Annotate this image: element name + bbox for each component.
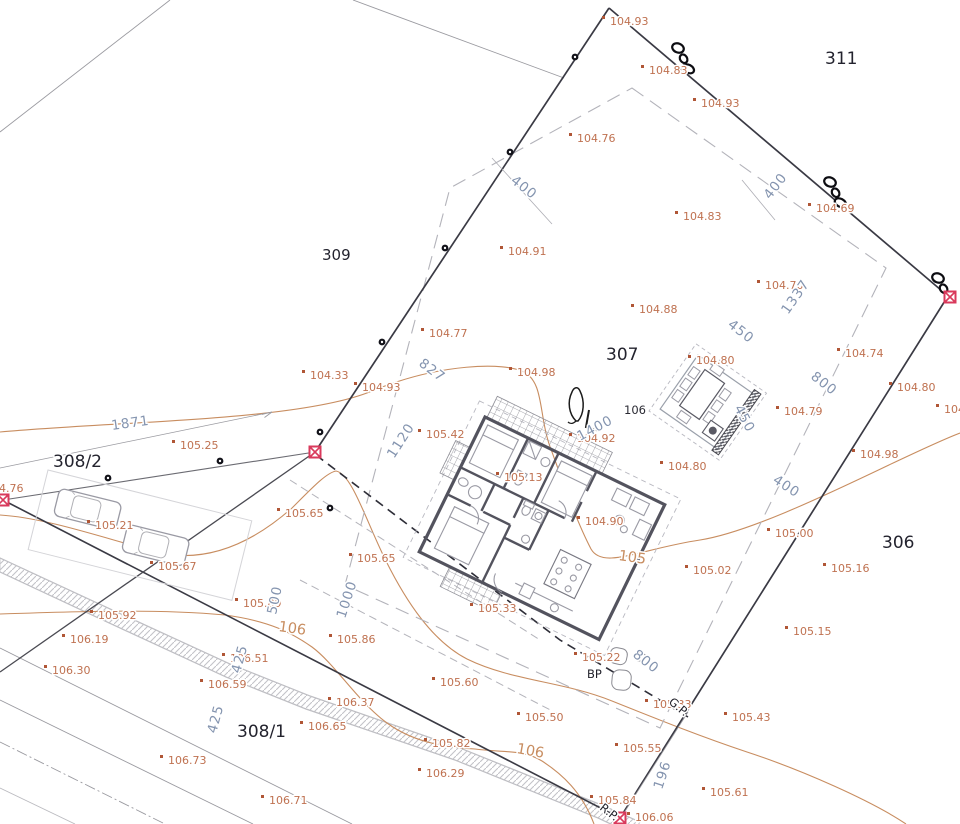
armchair-1	[611, 488, 631, 507]
elevation-label: 104.33	[310, 369, 349, 382]
boundary-east	[609, 8, 948, 818]
elevation-label: 104.74	[845, 347, 884, 360]
driveway-dashed-1	[290, 480, 540, 640]
elevation-label: 106.71	[269, 794, 308, 807]
elevation-dot	[87, 520, 90, 523]
elevation-label: 106.59	[208, 678, 247, 691]
elevation-label: 104.77	[429, 327, 468, 340]
elevation-dot	[675, 211, 678, 214]
elevation-label: 105.43	[732, 711, 771, 724]
elevation-dot	[329, 634, 332, 637]
elevation-dot	[724, 712, 727, 715]
elevation-dot	[354, 382, 357, 385]
elevation-dot	[496, 472, 499, 475]
elevation-dot	[418, 429, 421, 432]
parcel-number: 309	[322, 246, 351, 264]
road-edge-line-3	[0, 788, 75, 824]
elevation-label: 105.65	[285, 507, 324, 520]
elevation-dot	[569, 433, 572, 436]
elevation-dot	[277, 508, 280, 511]
elevation-label: 104.76	[0, 482, 24, 495]
elevation-dot	[421, 328, 424, 331]
elevation-dot	[44, 665, 47, 668]
parcel-number: 306	[882, 533, 914, 553]
elevation-dot	[785, 626, 788, 629]
elevation-label: 105.21	[95, 519, 134, 532]
elevation-dot	[889, 382, 892, 385]
elevation-label: 104.80	[668, 460, 707, 473]
elevation-dot	[470, 603, 473, 606]
elevation-label: 105.15	[793, 625, 832, 638]
elevation-dot	[328, 697, 331, 700]
elevation-label: 104.98	[517, 366, 556, 379]
elevation-dot	[602, 16, 605, 19]
elevation-dot	[693, 98, 696, 101]
dimension-labels-layer: 4004001337450800450827112014001871400500…	[110, 170, 840, 791]
elevation-label: 104.88	[639, 303, 678, 316]
parcel-number: 308/1	[237, 722, 286, 742]
parking-area	[28, 470, 252, 600]
elevation-label: 105.55	[623, 742, 662, 755]
elevation-label: 105.82	[432, 737, 471, 750]
boundary-308-2-north	[3, 452, 315, 500]
elevation-label: 105.67	[158, 560, 197, 573]
dimension-label: 425	[228, 643, 251, 675]
tree-icon	[569, 388, 583, 421]
elevation-label: 105.16	[831, 562, 870, 575]
parcel-number: 307	[606, 345, 638, 365]
elevation-dot	[150, 561, 153, 564]
elevation-dot	[509, 367, 512, 370]
elevation-label: 104.98	[860, 448, 899, 461]
armchair-2	[629, 497, 649, 516]
elevation-label: 104.91	[508, 245, 547, 258]
survey-marker-red	[0, 495, 9, 506]
elevation-label: 106.37	[336, 696, 375, 709]
elevation-dot	[808, 203, 811, 206]
elevation-dot	[569, 133, 572, 136]
dimension-label: 450	[725, 317, 758, 347]
elevation-dot	[936, 404, 939, 407]
elevation-dot	[627, 812, 630, 815]
sink-1	[539, 456, 551, 468]
dimension-label: 800	[630, 647, 663, 677]
elevation-dot	[577, 516, 580, 519]
boundary-west	[315, 8, 609, 452]
elevation-label: 105.92	[98, 609, 137, 622]
red-markers-layer	[0, 292, 956, 824]
elevation-dot	[62, 634, 65, 637]
dimension-label: 425	[204, 703, 227, 735]
elevation-dot	[235, 598, 238, 601]
elevation-dot	[767, 528, 770, 531]
elevation-dot	[172, 440, 175, 443]
elevation-dot	[300, 721, 303, 724]
road-embankment	[0, 558, 640, 824]
tie-line-north	[353, 0, 564, 78]
elevation-label: 104.79	[784, 405, 823, 418]
elevation-label: 105.00	[775, 527, 814, 540]
survey-note: BP	[587, 667, 602, 681]
elevation-dot	[574, 652, 577, 655]
elevation-label: 106.30	[52, 664, 91, 677]
elevation-label: 105.02	[693, 564, 732, 577]
elevation-dot	[418, 768, 421, 771]
embankment-hatch-band	[0, 558, 640, 824]
elevation-dot	[645, 699, 648, 702]
elevation-label: 104.76	[577, 132, 616, 145]
elevation-label: 105.13	[504, 471, 543, 484]
elevation-label: 104.9	[944, 403, 960, 416]
elevation-label: 106.29	[426, 767, 465, 780]
parcel-number: 311	[825, 49, 857, 69]
elevation-label: 104.80	[897, 381, 936, 394]
elevation-label: 104.83	[649, 64, 688, 77]
elevation-label: 105.65	[357, 552, 396, 565]
sink-2	[520, 534, 531, 545]
cadastral-site-plan: 104.93104.83104.93104.76104.83104.69104.…	[0, 0, 960, 824]
stove	[519, 583, 535, 599]
elevation-label: 104.93	[610, 15, 649, 28]
elevation-dot	[349, 553, 352, 556]
elevation-dot	[200, 679, 203, 682]
survey-marker-red	[310, 447, 321, 458]
elevation-label: 105.22	[582, 651, 621, 664]
contour-label: 106	[624, 403, 646, 417]
contour-label: 106	[515, 741, 545, 762]
elevation-dot	[261, 795, 264, 798]
elevation-label: 106.65	[308, 720, 347, 733]
elevation-dot	[500, 246, 503, 249]
elevation-dot	[517, 712, 520, 715]
elevation-label: 106.19	[70, 633, 109, 646]
elevation-dot	[852, 449, 855, 452]
shower-2	[466, 484, 483, 501]
elevation-dot	[823, 563, 826, 566]
elevation-label: 105.86	[337, 633, 376, 646]
dimension-label: 500	[264, 584, 286, 615]
elevation-dot	[302, 370, 305, 373]
site-plan-canvas: 104.93104.83104.93104.76104.83104.69104.…	[0, 0, 960, 824]
elevation-label: 104.80	[696, 354, 735, 367]
elevation-label: 106.06	[635, 811, 674, 824]
elevation-label: 104.83	[683, 210, 722, 223]
tie-line-northwest	[0, 0, 170, 132]
elevation-dot	[641, 65, 644, 68]
elevation-label: 105.50	[525, 711, 564, 724]
elevation-label: 105.33	[478, 602, 517, 615]
toilet-3	[457, 476, 469, 488]
elevation-dot	[590, 795, 593, 798]
elevation-dot	[685, 565, 688, 568]
elevation-dot	[837, 348, 840, 351]
elevation-dot	[702, 787, 705, 790]
contour-label: 106	[277, 619, 307, 639]
elevation-label: 106.73	[168, 754, 207, 767]
elevation-dot	[90, 610, 93, 613]
road-centerline	[0, 742, 165, 824]
dimension-label: 1871	[110, 413, 150, 434]
elevation-label: 105.60	[440, 676, 479, 689]
dimension-label: 400	[508, 173, 541, 203]
elevation-dot	[222, 653, 225, 656]
parcel-number: 308/2	[53, 452, 102, 472]
elevation-dot	[660, 461, 663, 464]
contour-label: 105	[617, 548, 647, 568]
elevation-dot	[432, 677, 435, 680]
elevation-label: 104.69	[816, 202, 855, 215]
proposed-boundary-dashed	[316, 455, 688, 717]
dimension-label: 827	[416, 355, 449, 385]
elevation-dot	[424, 738, 427, 741]
elevation-dot	[757, 280, 760, 283]
elevation-dot	[688, 355, 691, 358]
elevation-dot	[615, 743, 618, 746]
survey-marker-red	[945, 292, 956, 303]
elevation-label: 104.90	[585, 515, 624, 528]
dimension-label: 1120	[384, 420, 418, 461]
elevation-label: 105.25	[180, 439, 219, 452]
fence-symbols-layer	[663, 39, 954, 296]
elevation-dot	[776, 406, 779, 409]
elevation-label: 104.93	[701, 97, 740, 110]
parcel-labels-layer: 311309307308/2306308/1	[53, 49, 914, 742]
elevation-dot	[160, 755, 163, 758]
elevation-label: 105.42	[426, 428, 465, 441]
elevation-dot	[631, 304, 634, 307]
elevation-label: 104.93	[362, 381, 401, 394]
dimension-label: 400	[770, 472, 803, 501]
elevation-label: 105.61	[710, 786, 749, 799]
